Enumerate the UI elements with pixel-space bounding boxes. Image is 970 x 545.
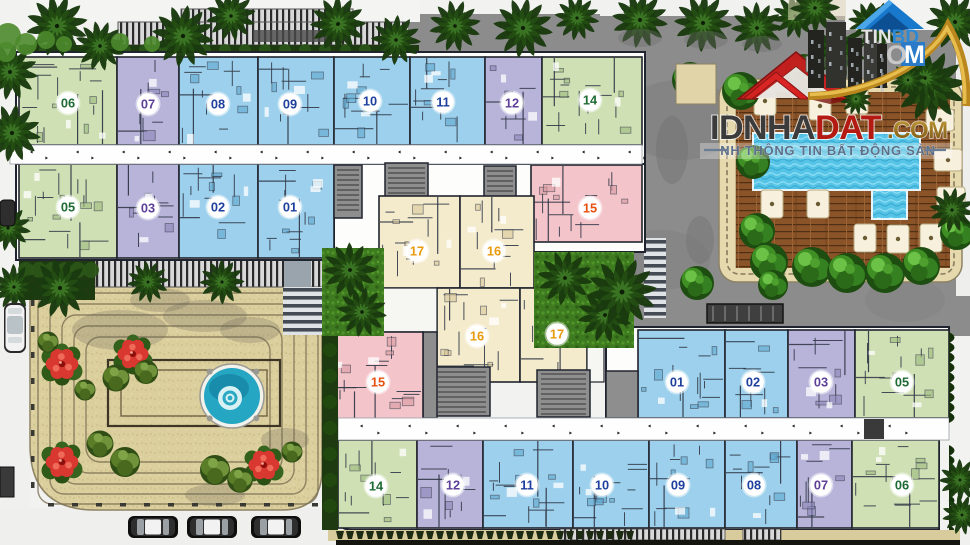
svg-text:01: 01 xyxy=(670,375,684,390)
svg-text:17: 17 xyxy=(550,327,564,342)
svg-text:09: 09 xyxy=(671,478,685,493)
svg-text:M: M xyxy=(904,41,925,69)
svg-text:10: 10 xyxy=(363,94,377,109)
svg-text:03: 03 xyxy=(141,201,155,216)
svg-text:16: 16 xyxy=(470,329,484,344)
svg-text:06: 06 xyxy=(61,96,75,111)
svg-text:09: 09 xyxy=(283,97,297,112)
svg-text:11: 11 xyxy=(436,95,450,110)
svg-text:12: 12 xyxy=(505,96,519,111)
svg-text:16: 16 xyxy=(487,244,501,259)
svg-text:15: 15 xyxy=(371,375,385,390)
svg-text:03: 03 xyxy=(814,375,828,390)
svg-text:05: 05 xyxy=(895,375,909,390)
svg-text:06: 06 xyxy=(895,478,909,493)
svg-text:14: 14 xyxy=(583,93,598,108)
svg-text:10: 10 xyxy=(595,478,609,493)
svg-text:05: 05 xyxy=(61,200,75,215)
svg-text:01: 01 xyxy=(283,200,297,215)
svg-text:08: 08 xyxy=(747,478,761,493)
svg-text:11: 11 xyxy=(520,478,534,493)
svg-text:02: 02 xyxy=(746,375,760,390)
svg-text:15: 15 xyxy=(583,201,597,216)
svg-text:12: 12 xyxy=(446,478,460,493)
svg-text:08: 08 xyxy=(211,97,225,112)
svg-text:IDNHADAT: IDNHADAT xyxy=(710,109,882,147)
svg-text:07: 07 xyxy=(141,97,155,112)
svg-text:17: 17 xyxy=(410,244,424,259)
svg-text:.COM: .COM xyxy=(887,117,948,144)
svg-text:14: 14 xyxy=(369,479,384,494)
svg-text:02: 02 xyxy=(211,200,225,215)
svg-text:07: 07 xyxy=(814,478,828,493)
svg-text:NH THÔNG TIN BẤT ĐỘNG SẢN: NH THÔNG TIN BẤT ĐỘNG SẢN xyxy=(720,143,935,158)
